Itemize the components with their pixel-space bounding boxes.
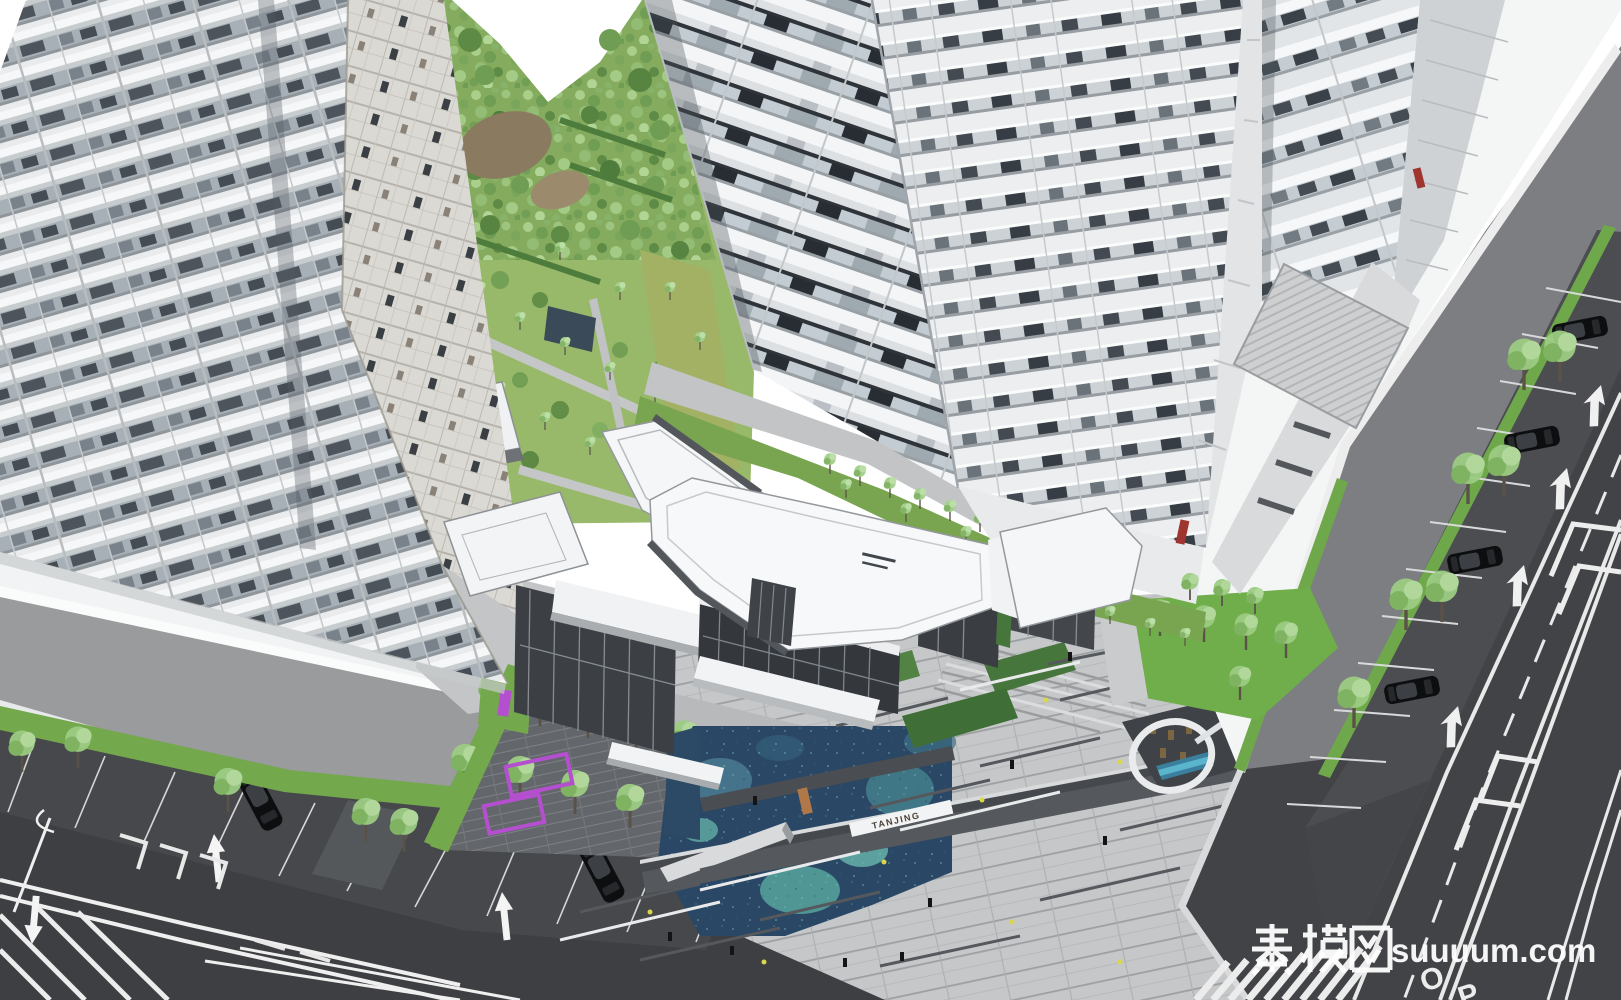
svg-text:suuuum.com: suuuum.com — [1391, 932, 1596, 969]
